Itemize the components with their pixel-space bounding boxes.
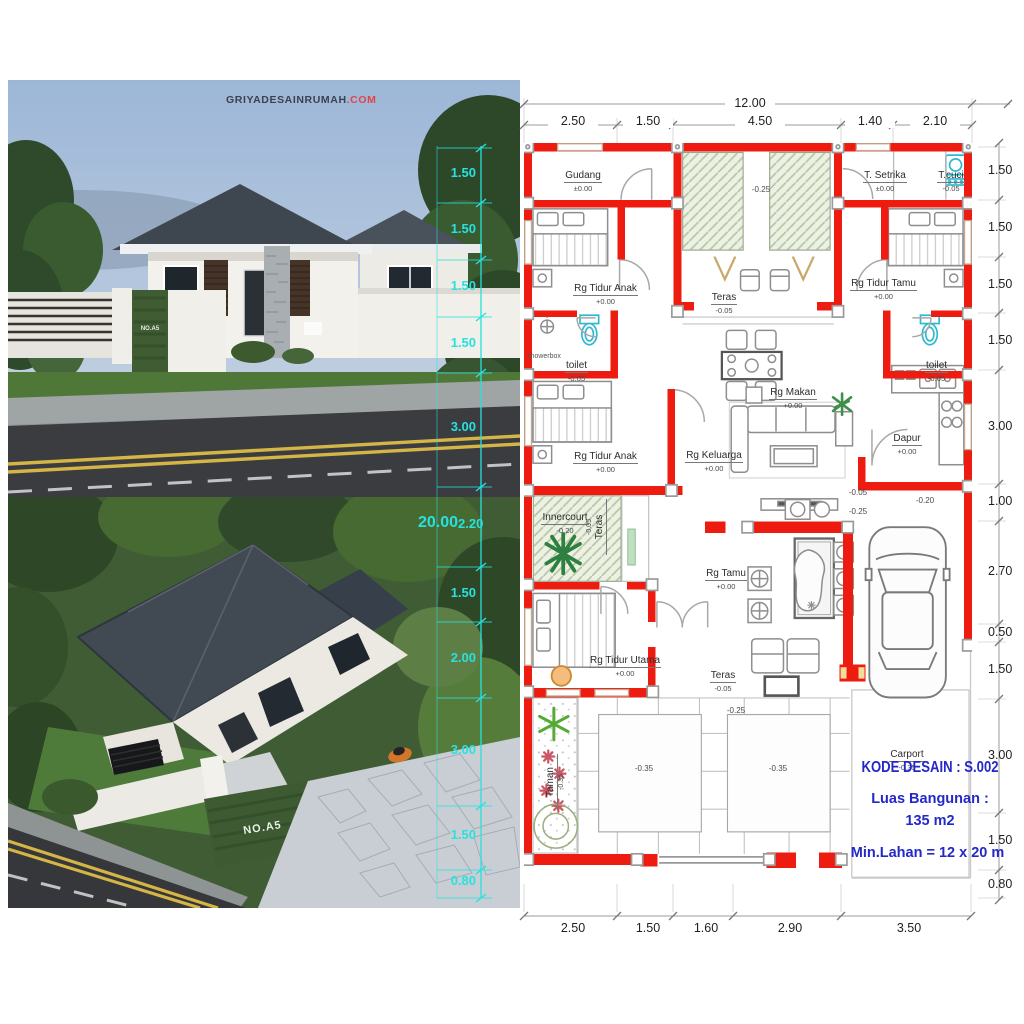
plan-dim-top-3: 4.50 xyxy=(735,115,785,128)
toilet-icon xyxy=(580,315,599,345)
room-level: +0.00 xyxy=(877,447,937,456)
site-dim-4: 1.50 xyxy=(430,336,476,349)
plan-dim-bottom-2: 1.50 xyxy=(623,922,673,935)
room-label-rg-tamu: Rg Tamu +0.00 xyxy=(688,562,764,591)
room-level: +0.00 xyxy=(688,582,764,591)
site-dim-8: 2.00 xyxy=(430,651,476,664)
room-label-rg-tidur-anak-2: Rg Tidur Anak +0.00 xyxy=(558,445,653,474)
room-label-toilet-right: toilet -0.05 xyxy=(909,354,964,383)
plan-dim-right-12: 0.80 xyxy=(988,878,1012,891)
spot-level-1: -0.25 xyxy=(736,186,786,194)
street xyxy=(8,380,520,497)
room-name: toilet xyxy=(565,360,588,373)
room-level: +0.00 xyxy=(558,297,653,306)
plan-dim-right-7: 2.70 xyxy=(988,565,1012,578)
plan-dim-bottom-3: 1.60 xyxy=(681,922,731,935)
room-level: ±0.00 xyxy=(545,184,621,193)
plan-dim-top-5: 2.10 xyxy=(910,115,960,128)
brand-suffix: .COM xyxy=(347,94,377,106)
building-area-value: 135 m2 xyxy=(845,814,1015,829)
room-name: Gudang xyxy=(564,170,602,183)
room-name: Teras xyxy=(710,670,736,683)
room-level: +0.00 xyxy=(836,292,931,301)
brand-name: GRIYADESAINRUMAH xyxy=(226,94,347,106)
room-name: Rg Tidur Anak xyxy=(573,283,638,296)
site-dim-total: 20.00 xyxy=(408,515,458,531)
room-name: showerbox xyxy=(526,353,562,361)
site-dim-3: 1.50 xyxy=(430,279,476,292)
site-dim-2: 1.50 xyxy=(430,222,476,235)
spot-level-5: -0.25 xyxy=(716,707,756,715)
plan-dim-right-4: 1.50 xyxy=(988,334,1012,347)
room-name: Innercourt xyxy=(541,512,588,525)
min-land-size: Min.Lahan = 12 x 20 m xyxy=(830,846,1024,861)
bed-icon xyxy=(533,209,608,287)
room-name: Rg Tidur Tamu xyxy=(850,278,917,291)
plan-dim-bottom-4: 2.90 xyxy=(765,922,815,935)
room-level: -0.05 xyxy=(924,184,978,193)
room-name: T. Setrika xyxy=(863,170,907,183)
terrace-sofa-icon xyxy=(752,639,819,696)
room-label-gudang: Gudang ±0.00 xyxy=(545,164,621,193)
aerial-render: NO.A5 xyxy=(8,497,520,908)
round-table-icon xyxy=(552,666,571,686)
room-level: +0.00 xyxy=(575,669,675,678)
shrub-marks xyxy=(714,257,813,280)
site-dim-7: 1.50 xyxy=(430,586,476,599)
room-label-rg-tidur-anak-1: Rg Tidur Anak +0.00 xyxy=(558,277,653,306)
room-name: T.cuci xyxy=(937,170,965,183)
plan-dim-right-9: 1.50 xyxy=(988,663,1012,676)
spot-level-2: -0.05 xyxy=(838,489,878,497)
room-label-teras-lower: Teras -0.05 xyxy=(692,664,754,693)
site-dim-1: 1.50 xyxy=(430,166,476,179)
room-label-teras-side: -0.05 Teras xyxy=(586,499,616,555)
spot-level-3: -0.25 xyxy=(838,508,878,516)
room-label-rg-makan: Rg Makan +0.00 xyxy=(762,381,824,410)
site-dim-5: 3.00 xyxy=(430,420,476,433)
room-name: Taman xyxy=(545,754,558,810)
patio-chair xyxy=(304,322,322,335)
room-label-dapur: Dapur +0.00 xyxy=(877,427,937,456)
car-icon xyxy=(866,527,950,697)
room-label-rg-keluarga: Rg Keluarga +0.00 xyxy=(676,444,752,473)
site-dim-9: 3.00 xyxy=(430,743,476,756)
room-level: -0.05 xyxy=(586,499,594,555)
room-level: +0.00 xyxy=(762,401,824,410)
plan-dim-right-8: 0.50 xyxy=(988,626,1012,639)
plan-dim-bottom-1: 2.50 xyxy=(548,922,598,935)
room-level: -0.05 xyxy=(909,374,964,383)
plan-dim-top-1: 2.50 xyxy=(548,115,598,128)
house-number-sign: NO.A5 xyxy=(141,326,160,332)
room-label-showerbox: showerbox xyxy=(522,344,566,363)
room-name: toilet xyxy=(925,360,948,373)
room-label-teras-top: Teras -0.05 xyxy=(694,286,754,315)
shrub xyxy=(231,341,275,363)
plan-dim-top-2: 1.50 xyxy=(623,115,673,128)
page: NO.A5 GRIYADESAINRUMAH.COM xyxy=(0,0,1024,1024)
room-name: Rg Makan xyxy=(769,387,817,400)
plan-dim-top-4: 1.40 xyxy=(845,115,895,128)
spot-level-4: -0.20 xyxy=(905,497,945,505)
room-label-t-setrika: T. Setrika ±0.00 xyxy=(847,164,923,193)
room-level: -0.05 xyxy=(549,374,604,383)
site-dim-6: 2.20 xyxy=(458,517,502,530)
room-name: Dapur xyxy=(892,433,921,446)
room-label-taman: Taman -0.35 xyxy=(545,754,575,810)
building-area-label: Luas Bangunan : xyxy=(845,792,1015,807)
room-level: ±0.00 xyxy=(847,184,923,193)
room-label-t-cuci: T.cuci -0.05 xyxy=(924,164,978,193)
room-label-rg-tidur-tamu: Rg Tidur Tamu +0.00 xyxy=(836,272,931,301)
site-dim-10: 1.50 xyxy=(430,828,476,841)
plan-dim-right-5: 3.00 xyxy=(988,420,1012,433)
room-level: +0.00 xyxy=(558,465,653,474)
plan-dim-total: 12.00 xyxy=(725,97,775,110)
room-label-rg-tidur-utama: Rg Tidur Utama +0.00 xyxy=(575,649,675,678)
room-name: Rg Tidur Utama xyxy=(589,655,661,668)
plan-dim-right-6: 1.00 xyxy=(988,495,1012,508)
plan-dim-right-2: 1.50 xyxy=(988,221,1012,234)
toilet-icon xyxy=(920,315,939,345)
room-name: Rg Tamu xyxy=(705,568,747,581)
room-level: -0.35 xyxy=(558,754,566,810)
room-name: Rg Keluarga xyxy=(685,450,743,463)
room-level: +0.00 xyxy=(676,464,752,473)
shrub-aerial xyxy=(42,779,98,815)
room-name: Teras xyxy=(594,499,607,555)
plan-dim-bottom-5: 3.50 xyxy=(884,922,934,935)
room-name: Rg Tidur Anak xyxy=(573,451,638,464)
plan-dim-right-3: 1.50 xyxy=(988,278,1012,291)
design-code: KODE DESAIN : S.002 xyxy=(852,760,1008,776)
room-name: Teras xyxy=(711,292,737,305)
room-level: -0.05 xyxy=(694,306,754,315)
front-fence-line xyxy=(659,857,765,863)
brand-watermark: GRIYADESAINRUMAH.COM xyxy=(226,94,374,106)
spot-level-7: -0.35 xyxy=(758,765,798,773)
site-dim-11: 0.80 xyxy=(430,874,476,887)
room-level: -0.05 xyxy=(692,684,754,693)
spot-level-6: -0.35 xyxy=(624,765,664,773)
plan-dim-right-1: 1.50 xyxy=(988,164,1012,177)
pond-icon xyxy=(795,539,834,618)
